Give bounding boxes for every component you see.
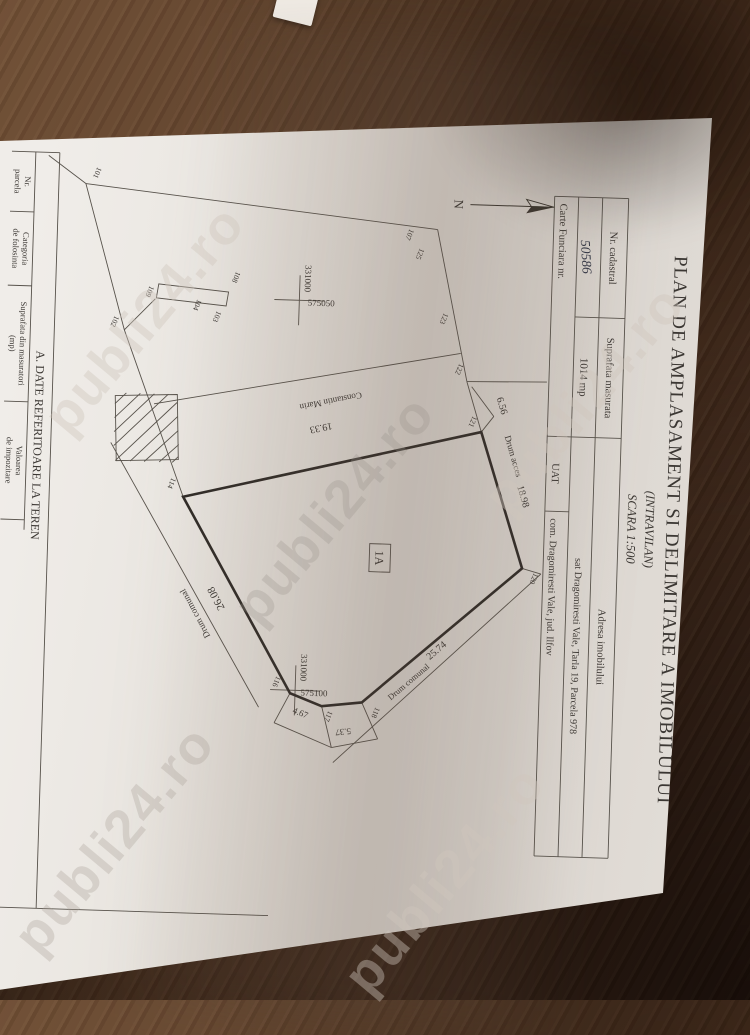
len-4-67: 4.67 (291, 705, 310, 721)
col-categoria-2: de folosinta (10, 228, 21, 268)
neighbor-boundaries (38, 155, 553, 508)
col-valoarea-1: Valoarea (14, 446, 25, 476)
parcel-id: 1A (369, 544, 391, 573)
nr-cadastral-label: Nr. cadastral (606, 231, 619, 284)
vertex-122: 122 (453, 362, 466, 376)
vertex-116: 116 (270, 675, 283, 689)
drum-acces-label: Drum acces (503, 434, 525, 478)
vertex-117: 117 (322, 710, 335, 724)
neighbor-building (156, 284, 229, 306)
suprafata-label: Suprafata masurata (602, 338, 616, 419)
col-suprafata-2: (mp) (8, 335, 19, 352)
grid-northing-east: 331000 (298, 654, 309, 682)
parcel-1a-boundary (177, 423, 527, 713)
neighbor-owner-label: Constantin Marin (298, 390, 362, 412)
grid-easting-east: 575100 (300, 688, 328, 699)
paper-scrap (272, 0, 319, 26)
page-title: PLAN DE AMPLASAMENT SI DELIMITARE A IMOB… (653, 256, 691, 805)
north-arrow: N (451, 197, 554, 214)
suprafata-value: 1014 mp (576, 358, 589, 398)
len-25-74: 25.74 (425, 639, 449, 662)
header-table-text: Nr. cadastral Suprafata masurata Adresa … (541, 203, 620, 735)
len-6-56: 6.56 (494, 396, 509, 416)
vertex-109: 109 (143, 285, 156, 299)
vertex-103: 103 (211, 310, 224, 324)
len-26-08: 26.08 (205, 584, 228, 612)
col-suprafata-1: Suprafata din masuratori (17, 301, 30, 386)
vertex-101: 101 (91, 166, 104, 180)
col-nr-parcela-1: Nr. (23, 176, 33, 187)
survey-grid-crosses: 331000 575050 331000 575100 (261, 264, 341, 716)
vertex-118: 118 (369, 706, 382, 720)
vertex-labels: 101 102 103 104 107 108 109 114 116 117 … (74, 166, 553, 730)
hatched-structure (113, 393, 180, 463)
section-a-title: A. DATE REFERITOARE LA TEREN (28, 350, 48, 540)
scale-label: SCARA 1:500 (623, 494, 639, 565)
adresa-value: sat Dragomiresti Vale, Tarla 19, Parcela… (567, 558, 584, 734)
len-18-98: 18.98 (514, 484, 531, 509)
uat-value: com. Dragomiresti Vale, jud. Ilfov (543, 518, 558, 656)
drum-comunal-right-label: Drum comunal (386, 661, 432, 702)
len-19-33: 19.33 (309, 420, 333, 435)
col-categoria-1: Categoria (20, 232, 31, 266)
uat-label: UAT (549, 463, 561, 484)
vertex-123: 123 (438, 312, 451, 326)
page-subtitle: (INTRAVILAN) (641, 491, 657, 569)
grid-northing-west: 331000 (303, 265, 314, 293)
vertex-102: 102 (108, 314, 121, 328)
nr-cadastral-value: 50586 (578, 240, 595, 275)
parcel-id-label: 1A (372, 550, 386, 565)
plan-sheet: PLAN DE AMPLASAMENT SI DELIMITARE A IMOB… (0, 89, 713, 981)
vertex-114: 114 (165, 476, 178, 490)
north-letter: N (451, 199, 466, 209)
section-a-table: A. DATE REFERITOARE LA TEREN Nr. parcela… (0, 151, 292, 915)
col-nr-parcela-2: parcela (13, 169, 24, 194)
vertex-121: 121 (466, 415, 479, 429)
col-valoarea-2: de impozitare (3, 437, 14, 484)
vertex-104: 104 (191, 298, 204, 312)
grid-easting-west: 575050 (308, 298, 336, 309)
plan-drawing: PLAN DE AMPLASAMENT SI DELIMITARE A IMOB… (0, 89, 713, 981)
vertex-107: 107 (403, 228, 416, 242)
carte-funciara-label: Carte Funciara nr. (555, 203, 568, 279)
cadastral-plan-paper: PLAN DE AMPLASAMENT SI DELIMITARE A IMOB… (0, 0, 750, 1000)
adresa-label: Adresa imobilului (593, 609, 606, 686)
vertex-125: 125 (414, 247, 427, 261)
vertex-108: 108 (230, 270, 243, 284)
len-5-37: 5.37 (334, 726, 351, 737)
